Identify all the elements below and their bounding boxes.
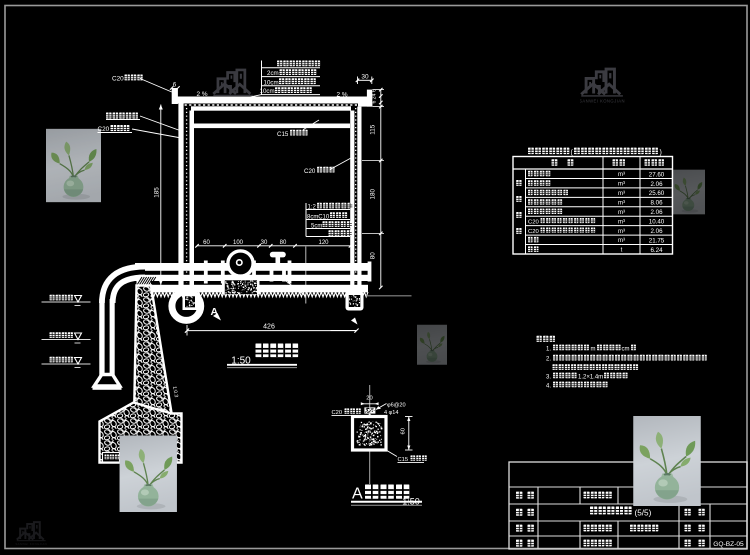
svg-text:m³: m³ <box>618 229 625 235</box>
svg-text:m³: m³ <box>618 219 625 225</box>
svg-text:3.: 3. <box>546 375 551 381</box>
svg-text:120: 120 <box>318 240 329 246</box>
svg-text:24: 24 <box>372 94 378 100</box>
svg-text:8.06: 8.06 <box>650 200 663 207</box>
svg-text:C20: C20 <box>112 76 124 83</box>
svg-text:m: m <box>591 347 596 353</box>
svg-text:C20: C20 <box>304 168 316 175</box>
svg-text:m³: m³ <box>618 182 625 188</box>
svg-text:A: A <box>352 486 363 503</box>
svg-text:cm: cm <box>622 347 630 353</box>
svg-text:(5/5): (5/5) <box>635 509 652 518</box>
svg-text:4.: 4. <box>546 384 551 390</box>
svg-text:10.40: 10.40 <box>649 219 665 226</box>
svg-text:27.60: 27.60 <box>649 171 665 178</box>
svg-text:m³: m³ <box>618 238 625 244</box>
svg-text:2.06: 2.06 <box>650 181 663 188</box>
svg-text:8cm: 8cm <box>307 214 318 220</box>
svg-text:426: 426 <box>263 323 275 330</box>
svg-text:60: 60 <box>203 240 210 246</box>
svg-text:m³: m³ <box>618 172 625 178</box>
svg-text:2cm: 2cm <box>267 70 279 77</box>
svg-text:1.2×1.4m: 1.2×1.4m <box>578 375 603 381</box>
svg-text:100: 100 <box>233 240 244 246</box>
svg-text:21.75: 21.75 <box>649 237 665 244</box>
svg-text:5cm: 5cm <box>311 223 322 229</box>
svg-text:C20: C20 <box>528 220 540 226</box>
svg-text:10cm: 10cm <box>260 88 275 95</box>
svg-text:GQ-BZ-05: GQ-BZ-05 <box>713 541 744 548</box>
svg-text:2 %: 2 % <box>336 92 347 99</box>
svg-text:m³: m³ <box>618 210 625 216</box>
svg-text:m³: m³ <box>618 200 625 206</box>
svg-text:185: 185 <box>154 187 161 198</box>
svg-text:2.06: 2.06 <box>650 209 663 216</box>
svg-text:2 %: 2 % <box>196 91 207 98</box>
svg-text:60: 60 <box>401 428 407 434</box>
svg-text:30: 30 <box>361 74 369 81</box>
svg-text:6: 6 <box>372 100 378 103</box>
svg-text:30: 30 <box>261 240 268 246</box>
svg-text:6.24: 6.24 <box>650 247 663 254</box>
svg-text:m³: m³ <box>618 191 625 197</box>
svg-text:C20: C20 <box>98 126 110 133</box>
svg-text:C20: C20 <box>528 229 540 235</box>
svg-text:80: 80 <box>370 252 377 260</box>
svg-text:115: 115 <box>370 124 377 135</box>
svg-text:): ) <box>660 150 662 157</box>
svg-text:C15: C15 <box>277 131 289 138</box>
svg-text:C10: C10 <box>318 214 330 220</box>
svg-text:180: 180 <box>370 188 377 199</box>
svg-text:6: 6 <box>372 89 378 92</box>
svg-text:20: 20 <box>366 396 372 402</box>
svg-text:φ6@20: φ6@20 <box>387 402 406 408</box>
svg-text:1.: 1. <box>546 347 551 353</box>
svg-text:2.06: 2.06 <box>650 228 663 235</box>
svg-text:80: 80 <box>280 240 287 246</box>
svg-text:2.: 2. <box>546 357 551 363</box>
svg-text:10cm: 10cm <box>264 79 279 86</box>
svg-text:25.60: 25.60 <box>649 190 665 197</box>
svg-text:1:2: 1:2 <box>308 205 317 211</box>
